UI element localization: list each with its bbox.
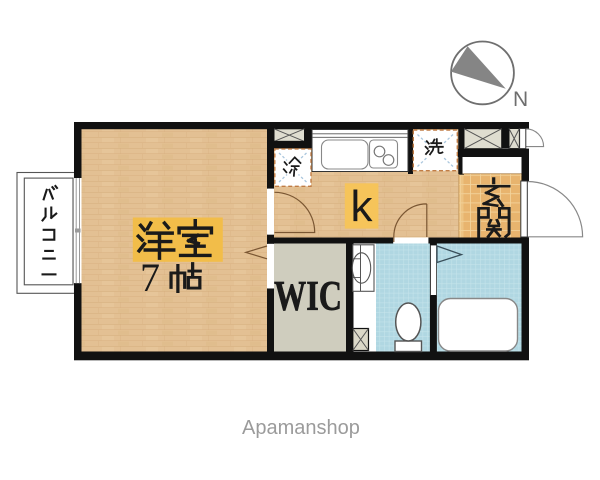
svg-text:N: N [513,88,528,111]
svg-text:7: 7 [140,255,160,300]
svg-text:k: k [351,182,374,231]
svg-text:Apamanshop: Apamanshop [242,417,360,439]
svg-text:WIC: WIC [274,274,342,320]
